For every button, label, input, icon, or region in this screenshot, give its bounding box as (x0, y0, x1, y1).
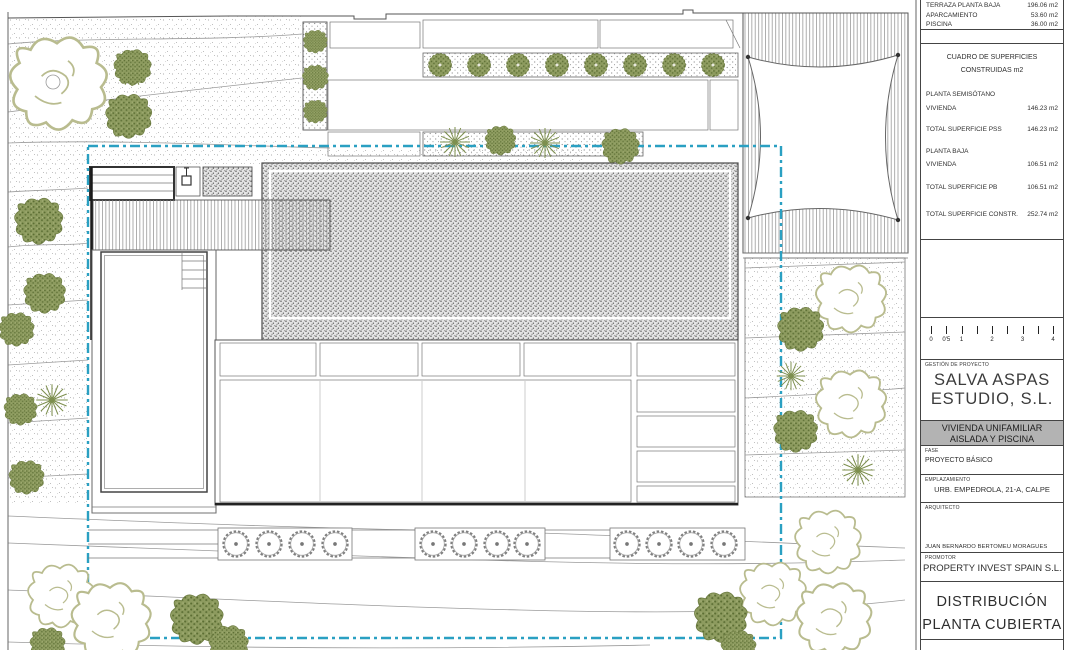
sheet-title-box: DISTRIBUCIÓN PLANTA CUBIERTA (921, 582, 1063, 640)
location-label: EMPLAZAMIENTO (921, 475, 1063, 483)
table-row: VIVIENDA 146.23 m2 (921, 104, 1063, 114)
surface-value: 106.51 m2 (1027, 183, 1058, 193)
area-label: APARCAMIENTO (926, 11, 977, 21)
surface-label: VIVIENDA (926, 104, 956, 114)
table-row: TOTAL SUPERFICIE PB 106.51 m2 (921, 183, 1063, 193)
sail-canopy (748, 55, 898, 220)
scale-label: 3 (1021, 337, 1024, 343)
pool (92, 250, 216, 513)
scale-label: 0 (929, 337, 932, 343)
developer-name: PROPERTY INVEST SPAIN S.L. (921, 561, 1063, 574)
upper-deck-band (93, 200, 330, 250)
site-plan-drawing (0, 0, 920, 650)
scale-tick (977, 326, 978, 334)
table-row: TOTAL SUPERFICIE PSS 146.23 m2 (921, 125, 1063, 135)
sail-terrace (743, 13, 908, 258)
surfaces-title: CUADRO DE SUPERFICIES (921, 54, 1063, 61)
surface-value: 252.74 m2 (1027, 210, 1058, 220)
phase-label: FASE (921, 446, 1063, 454)
scale-tick (1053, 326, 1054, 334)
phase-box: FASE PROYECTO BÁSICO (921, 446, 1063, 475)
scale-label: 4 (1051, 337, 1054, 343)
surface-label: PLANTA SEMISÓTANO (926, 90, 995, 100)
surfaces-table: CUADRO DE SUPERFICIES CONSTRUIDAS m2 PLA… (921, 44, 1063, 240)
architectural-sheet: TERRAZA PLANTA BAJA 196.06 m2 APARCAMIEN… (0, 0, 1070, 650)
developer-label: PROMOTOR (921, 553, 1063, 561)
scale-tick (1007, 326, 1008, 334)
scale-tick (946, 326, 947, 334)
area-value: 36.00 m2 (1031, 20, 1058, 30)
scale-label: 2 (990, 337, 993, 343)
architect-box: ARQUITECTO JUAN BERNARDO BERTOMEU MORAGU… (921, 503, 1063, 553)
project-title-line2: AISLADA Y PISCINA (921, 434, 1063, 445)
scale-tick (931, 326, 932, 334)
surfaces-subtitle: CONSTRUIDAS m2 (921, 67, 1063, 74)
project-title-line1: VIVIENDA UNIFAMILIAR (921, 423, 1063, 434)
table-row: APARCAMIENTO 53.60 m2 (921, 11, 1063, 21)
sheet-title-line2: PLANTA CUBIERTA (921, 617, 1063, 633)
area-value: 53.60 m2 (1031, 11, 1058, 21)
surface-value: 146.23 m2 (1027, 125, 1058, 135)
surface-label: TOTAL SUPERFICIE PSS (926, 125, 1002, 135)
management-box: GESTIÓN DE PROYECTO SALVA ASPAS ESTUDIO,… (921, 360, 1063, 421)
surface-label: VIVIENDA (926, 160, 956, 170)
scale-bar: 0 0'5 1 2 3 4 (921, 318, 1063, 360)
surface-label: TOTAL SUPERFICIE PB (926, 183, 997, 193)
surface-label: PLANTA BAJA (926, 147, 969, 157)
architect-name: JUAN BERNARDO BERTOMEU MORAGUES (925, 544, 1047, 550)
areas-table: TERRAZA PLANTA BAJA 196.06 m2 APARCAMIEN… (921, 0, 1063, 30)
roof-bands (303, 20, 740, 156)
table-row: TERRAZA PLANTA BAJA 196.06 m2 (921, 1, 1063, 11)
empty-box (921, 240, 1063, 318)
architect-label: ARQUITECTO (921, 503, 1063, 511)
location-box: EMPLAZAMIENTO URB. EMPEDROLA, 21-A, CALP… (921, 475, 1063, 503)
scale-tick (992, 326, 993, 334)
scale-tick (1023, 326, 1024, 334)
surface-label: TOTAL SUPERFICIE CONSTR. (926, 210, 1018, 220)
scale-tick (1038, 326, 1039, 334)
area-label: TERRAZA PLANTA BAJA (926, 1, 1000, 11)
studio-name-line1: SALVA ASPAS (921, 371, 1063, 390)
spacer-row (921, 640, 1063, 650)
gravel-roof (262, 163, 738, 340)
area-value: 196.06 m2 (1027, 1, 1058, 11)
phase-value: PROYECTO BÁSICO (921, 454, 1063, 464)
scale-tick (962, 326, 963, 334)
project-title-band: VIVIENDA UNIFAMILIAR AISLADA Y PISCINA (921, 421, 1063, 446)
sheet-title-line1: DISTRIBUCIÓN (921, 594, 1063, 610)
studio-name: SALVA ASPAS ESTUDIO, S.L. (921, 371, 1063, 409)
spacer-row (921, 30, 1063, 44)
management-label: GESTIÓN DE PROYECTO (921, 360, 1063, 368)
table-row: PLANTA BAJA (921, 147, 1063, 157)
scale-label: 1 (960, 337, 963, 343)
table-row: PISCINA 36.00 m2 (921, 20, 1063, 30)
title-block: TERRAZA PLANTA BAJA 196.06 m2 APARCAMIEN… (920, 0, 1064, 650)
location-value: URB. EMPEDROLA, 21-A, CALPE (921, 485, 1063, 494)
table-row: PLANTA SEMISÓTANO (921, 90, 1063, 100)
scale-label: 0'5 (942, 337, 950, 343)
hedge-rows (88, 528, 745, 560)
developer-box: PROMOTOR PROPERTY INVEST SPAIN S.L. (921, 553, 1063, 582)
area-label: PISCINA (926, 20, 952, 30)
surface-value: 106.51 m2 (1027, 160, 1058, 170)
studio-name-line2: ESTUDIO, S.L. (921, 390, 1063, 409)
surface-value: 146.23 m2 (1027, 104, 1058, 114)
table-row: TOTAL SUPERFICIE CONSTR. 252.74 m2 (921, 210, 1063, 220)
table-row: VIVIENDA 106.51 m2 (921, 160, 1063, 170)
